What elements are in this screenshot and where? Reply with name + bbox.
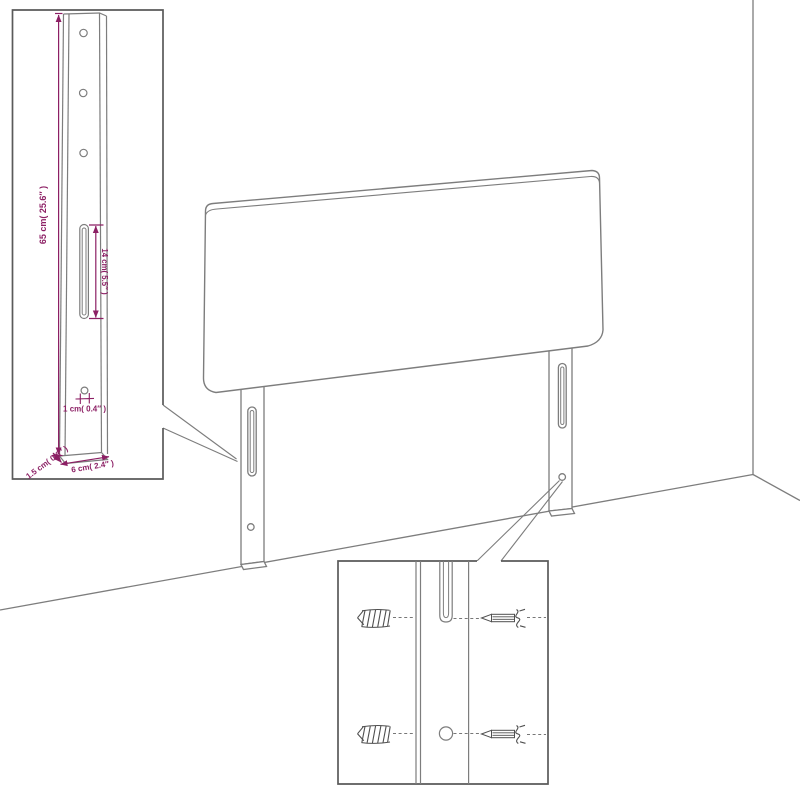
panel-outline: [204, 171, 604, 393]
detail-callout-height: 65 cm( 25.6″ ) 14 cm( 5.5″ ) 1 cm( 0.4″ …: [13, 10, 238, 481]
leg-right-hole: [559, 474, 566, 481]
bracket-right-side-edge: [107, 16, 108, 454]
headboard-panel: [204, 171, 604, 393]
hole-dimension-label: 1 cm( 0.4″ ): [63, 405, 106, 414]
callout-left-leader-lines: [163, 405, 238, 462]
bracket-left-inner-edge: [65, 14, 69, 456]
wall-floor-edge-right: [753, 475, 800, 501]
bracket-small-hole: [81, 387, 88, 394]
hole-dim-bracket: [76, 393, 95, 404]
depth-dimension-label: 1.5 cm( 0.6″ ): [24, 444, 70, 481]
bracket-slot-inner: [82, 228, 86, 315]
slot-dimension-label: 14 cm( 5.5″ ): [100, 248, 109, 295]
diagram-canvas: 65 cm( 25.6″ ) 14 cm( 5.5″ ) 1 cm( 0.4″ …: [0, 0, 800, 800]
bracket-slot: [80, 225, 89, 319]
bracket-right-front-edge: [100, 13, 102, 453]
headboard-dimension-diagram: 65 cm( 25.6″ ) 14 cm( 5.5″ ) 1 cm( 0.4″ …: [0, 0, 800, 800]
bracket-profile: [60, 13, 108, 464]
headboard-leg-right: [549, 345, 575, 517]
leg-left-hole: [248, 524, 255, 531]
detail-callout-mounting: [338, 481, 563, 785]
leg-left-slot-inner: [250, 411, 254, 473]
headboard-leg-left: [241, 382, 267, 570]
leg-right-slot-inner: [561, 367, 564, 425]
bracket-hole-shading: [79, 31, 81, 156]
height-dimension-label: 65 cm( 25.6″ ): [38, 186, 48, 244]
bracket-left-outer-edge: [60, 14, 64, 456]
